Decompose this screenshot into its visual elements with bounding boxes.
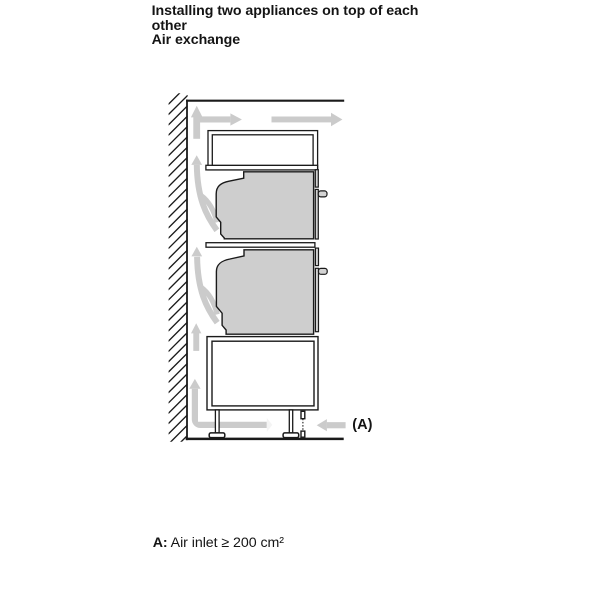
svg-text:(A): (A) bbox=[352, 417, 372, 433]
